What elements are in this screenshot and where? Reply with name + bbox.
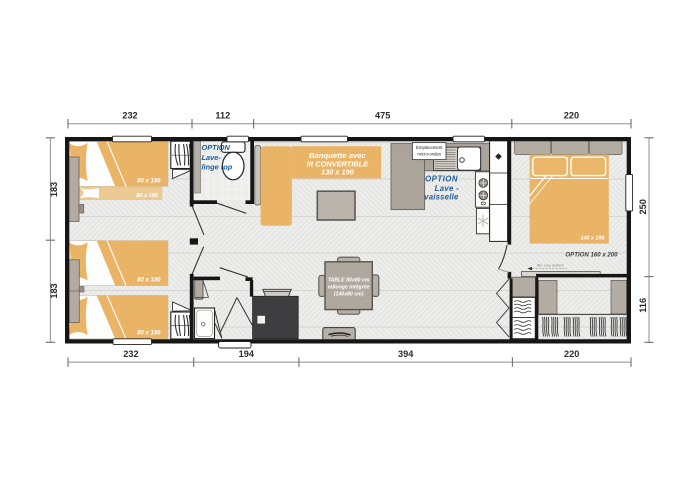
svg-text:80 x 190: 80 x 190 bbox=[137, 278, 161, 284]
svg-text:Lave-: Lave- bbox=[202, 153, 222, 162]
svg-text:183: 183 bbox=[49, 182, 59, 197]
svg-text:220: 220 bbox=[564, 110, 579, 120]
svg-text:Emplacement: Emplacement bbox=[416, 145, 443, 150]
svg-text:OPTION: OPTION bbox=[425, 174, 458, 183]
svg-text:TABLE 80x80 cm: TABLE 80x80 cm bbox=[328, 278, 370, 284]
svg-text:475: 475 bbox=[375, 110, 390, 120]
svg-text:116: 116 bbox=[638, 298, 648, 313]
svg-text:rallonge intégrée: rallonge intégrée bbox=[328, 285, 370, 291]
svg-text:micro-ondes: micro-ondes bbox=[417, 152, 441, 157]
svg-text:220: 220 bbox=[564, 349, 579, 359]
svg-text:(140x80 cm): (140x80 cm) bbox=[334, 292, 364, 298]
svg-text:394: 394 bbox=[398, 349, 414, 359]
svg-text:194: 194 bbox=[239, 349, 255, 359]
svg-text:232: 232 bbox=[123, 349, 138, 359]
svg-text:OPTION 160 x 200: OPTION 160 x 200 bbox=[565, 252, 618, 259]
svg-text:183: 183 bbox=[49, 283, 59, 298]
svg-text:250: 250 bbox=[638, 199, 648, 214]
svg-text:112: 112 bbox=[215, 110, 230, 120]
svg-text:80 x 180: 80 x 180 bbox=[136, 193, 159, 199]
svg-text:OPTION: OPTION bbox=[202, 143, 231, 152]
svg-text:232: 232 bbox=[122, 110, 137, 120]
svg-text:80 x 190: 80 x 190 bbox=[137, 331, 161, 337]
svg-text:140 x 190: 140 x 190 bbox=[581, 236, 605, 242]
svg-text:dim. sous plafond: dim. sous plafond bbox=[537, 263, 564, 267]
svg-text:130 x 190: 130 x 190 bbox=[321, 167, 355, 176]
svg-text:linge top: linge top bbox=[202, 162, 233, 171]
svg-text:80 x 190: 80 x 190 bbox=[137, 179, 161, 185]
svg-text:vaisselle: vaisselle bbox=[424, 192, 459, 201]
